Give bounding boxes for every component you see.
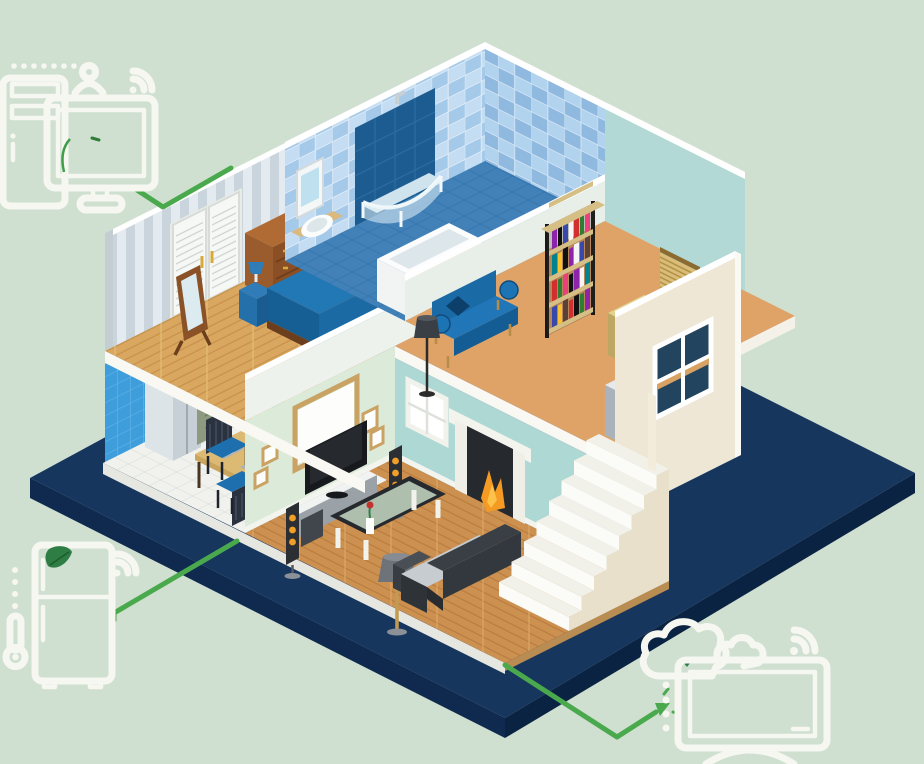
icon-group-smart-display bbox=[3, 63, 155, 210]
smart-home-scene bbox=[0, 0, 924, 764]
wifi-icon bbox=[114, 554, 137, 577]
thermometer-icon bbox=[6, 567, 25, 667]
fridge-outline bbox=[35, 545, 112, 687]
icon-group-cloud-tv bbox=[643, 622, 827, 764]
dotted-row bbox=[11, 63, 77, 69]
wifi-icon bbox=[790, 630, 815, 655]
user-icon bbox=[75, 66, 103, 94]
stair-wall-edge bbox=[648, 392, 656, 472]
illustration-canvas bbox=[0, 0, 924, 764]
leaf-icon bbox=[45, 546, 72, 567]
wifi-icon bbox=[130, 71, 153, 94]
